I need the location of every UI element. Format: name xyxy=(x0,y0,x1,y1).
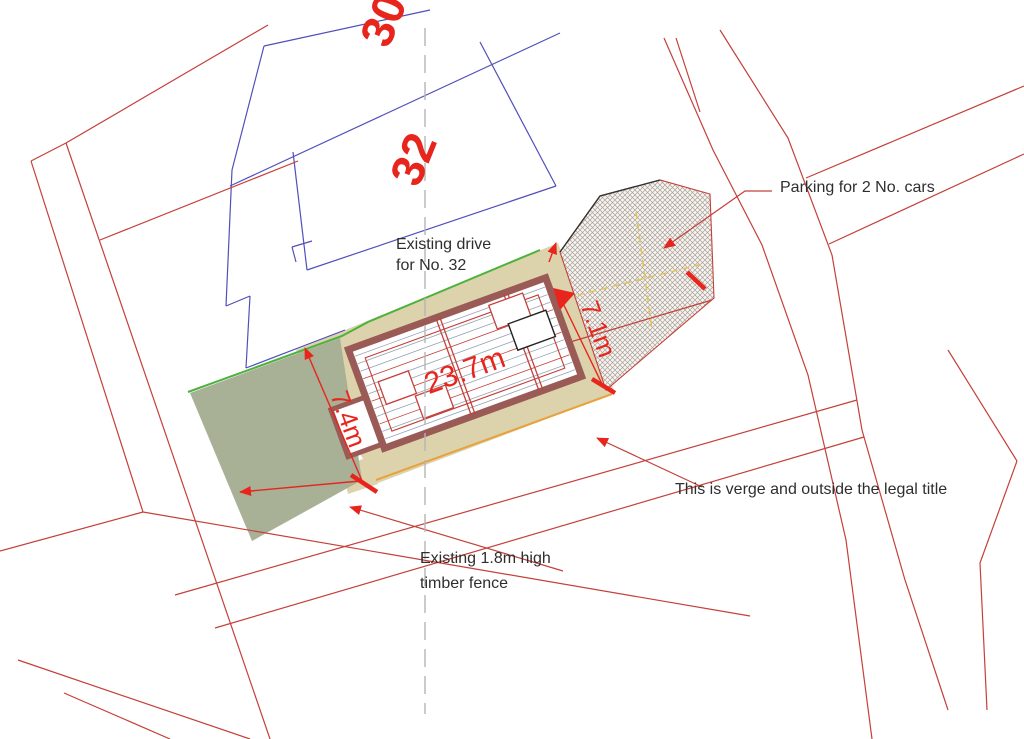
diagonal-road-lower-kerb xyxy=(829,154,1024,244)
bottomright-line-a xyxy=(948,350,1017,461)
existing-drive-label-line1: Existing drive xyxy=(396,236,491,253)
mid-boundary-line xyxy=(100,161,298,240)
corridor-left-line xyxy=(31,161,143,512)
bottom-left-line-1 xyxy=(18,660,250,739)
diagonal-road-upper-kerb xyxy=(806,86,1024,178)
kerb-left-entry xyxy=(0,512,143,551)
boundary-topleft-short xyxy=(31,143,66,161)
fence-label-line2: timber fence xyxy=(420,575,508,592)
fence-label-line1: Existing 1.8m high xyxy=(420,550,551,567)
bottom-left-line-2 xyxy=(64,693,170,739)
parking-label: Parking for 2 No. cars xyxy=(780,179,935,196)
site-plan-drawing: 30 32 Existing drive for No. 32 Parking … xyxy=(0,0,1024,739)
house-number-32: 32 xyxy=(379,126,446,193)
existing-drive-label-line2: for No. 32 xyxy=(396,257,466,274)
leader-verge xyxy=(597,438,702,487)
house-number-30: 30 xyxy=(349,0,416,53)
verge-label: This is verge and outside the legal titl… xyxy=(675,481,947,498)
steep-road-left-kerb xyxy=(664,38,872,739)
site-plan: 30 32 Existing drive for No. 32 Parking … xyxy=(0,0,1024,739)
boundary-topleft-diagonal xyxy=(66,25,268,143)
garden-sage-area xyxy=(190,338,362,541)
bottomright-line-b xyxy=(980,461,1017,710)
